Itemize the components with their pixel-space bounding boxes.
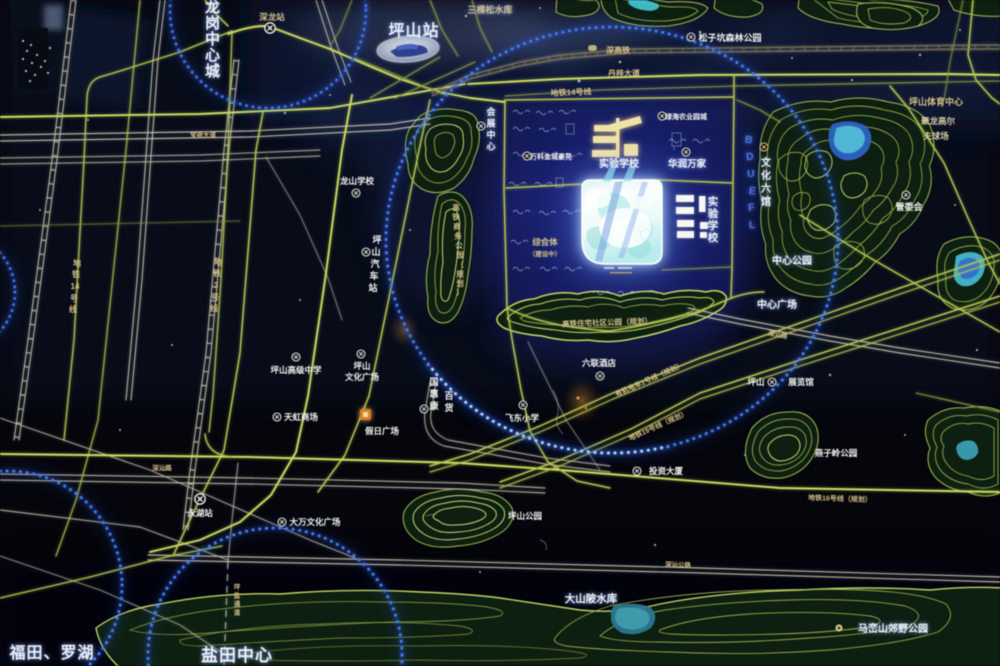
svg-text:中心公园: 中心公园	[772, 254, 812, 267]
svg-text:大万文化广场: 大万文化广场	[289, 517, 341, 527]
svg-text:燕子岭公园: 燕子岭公园	[815, 448, 858, 458]
svg-text:三棵松水库: 三棵松水库	[467, 4, 512, 15]
svg-text:投资大厦: 投资大厦	[649, 466, 684, 476]
svg-text:坪山站: 坪山站	[388, 21, 439, 40]
svg-text:盐田中心: 盐田中心	[201, 645, 273, 665]
svg-text:实验学校: 实验学校	[599, 157, 640, 170]
svg-text:展览馆: 展览馆	[787, 377, 814, 387]
svg-text:福田、罗湖: 福田、罗湖	[8, 643, 94, 662]
svg-text:坪山: 坪山	[747, 377, 764, 387]
svg-text:绿海农业园城: 绿海农业园城	[665, 112, 707, 121]
svg-text:实验学校: 实验学校	[708, 195, 719, 244]
svg-text:管委会: 管委会	[895, 201, 923, 212]
svg-text:宝荷大道: 宝荷大道	[190, 130, 217, 139]
svg-text:假日广场: 假日广场	[365, 426, 400, 436]
svg-text:深汕路: 深汕路	[152, 463, 172, 472]
svg-text:U: U	[747, 168, 755, 180]
svg-text:六联酒店: 六联酒店	[582, 358, 617, 368]
svg-text:E: E	[748, 185, 756, 198]
svg-text:马峦山郊野公园: 马峦山郊野公园	[858, 622, 928, 635]
svg-text:万科金城豪苑: 万科金城豪苑	[529, 152, 572, 161]
svg-text:中心广场: 中心广场	[757, 298, 797, 311]
svg-text:坪山体育中心: 坪山体育中心	[909, 96, 963, 107]
svg-text:地铁14号线: 地铁14号线	[550, 86, 591, 97]
svg-text:龙山学校: 龙山学校	[339, 176, 375, 186]
svg-text:飞东小学: 飞东小学	[505, 413, 540, 423]
svg-text:松子坑森林公园: 松子坑森林公园	[698, 32, 761, 43]
svg-text:丹梓大道: 丹梓大道	[607, 68, 640, 79]
svg-text:坪山公园: 坪山公园	[508, 511, 542, 521]
svg-text:坪山高级中学: 坪山高级中学	[270, 365, 322, 375]
svg-text:国惠康: 国惠康	[429, 377, 439, 411]
svg-text:深高铁: 深高铁	[606, 45, 630, 55]
svg-text:深龙站: 深龙站	[259, 12, 285, 22]
svg-text:华润万家: 华润万家	[668, 158, 707, 170]
svg-text:龙岗中心城: 龙岗中心城	[204, 0, 221, 80]
svg-text:坪盐通道: 坪盐通道	[234, 582, 241, 617]
svg-text:L: L	[749, 219, 756, 231]
svg-text:天虹商场: 天虹商场	[284, 412, 319, 422]
svg-text:大山陂水库: 大山陂水库	[565, 592, 618, 605]
svg-text:永湖站: 永湖站	[186, 508, 213, 518]
